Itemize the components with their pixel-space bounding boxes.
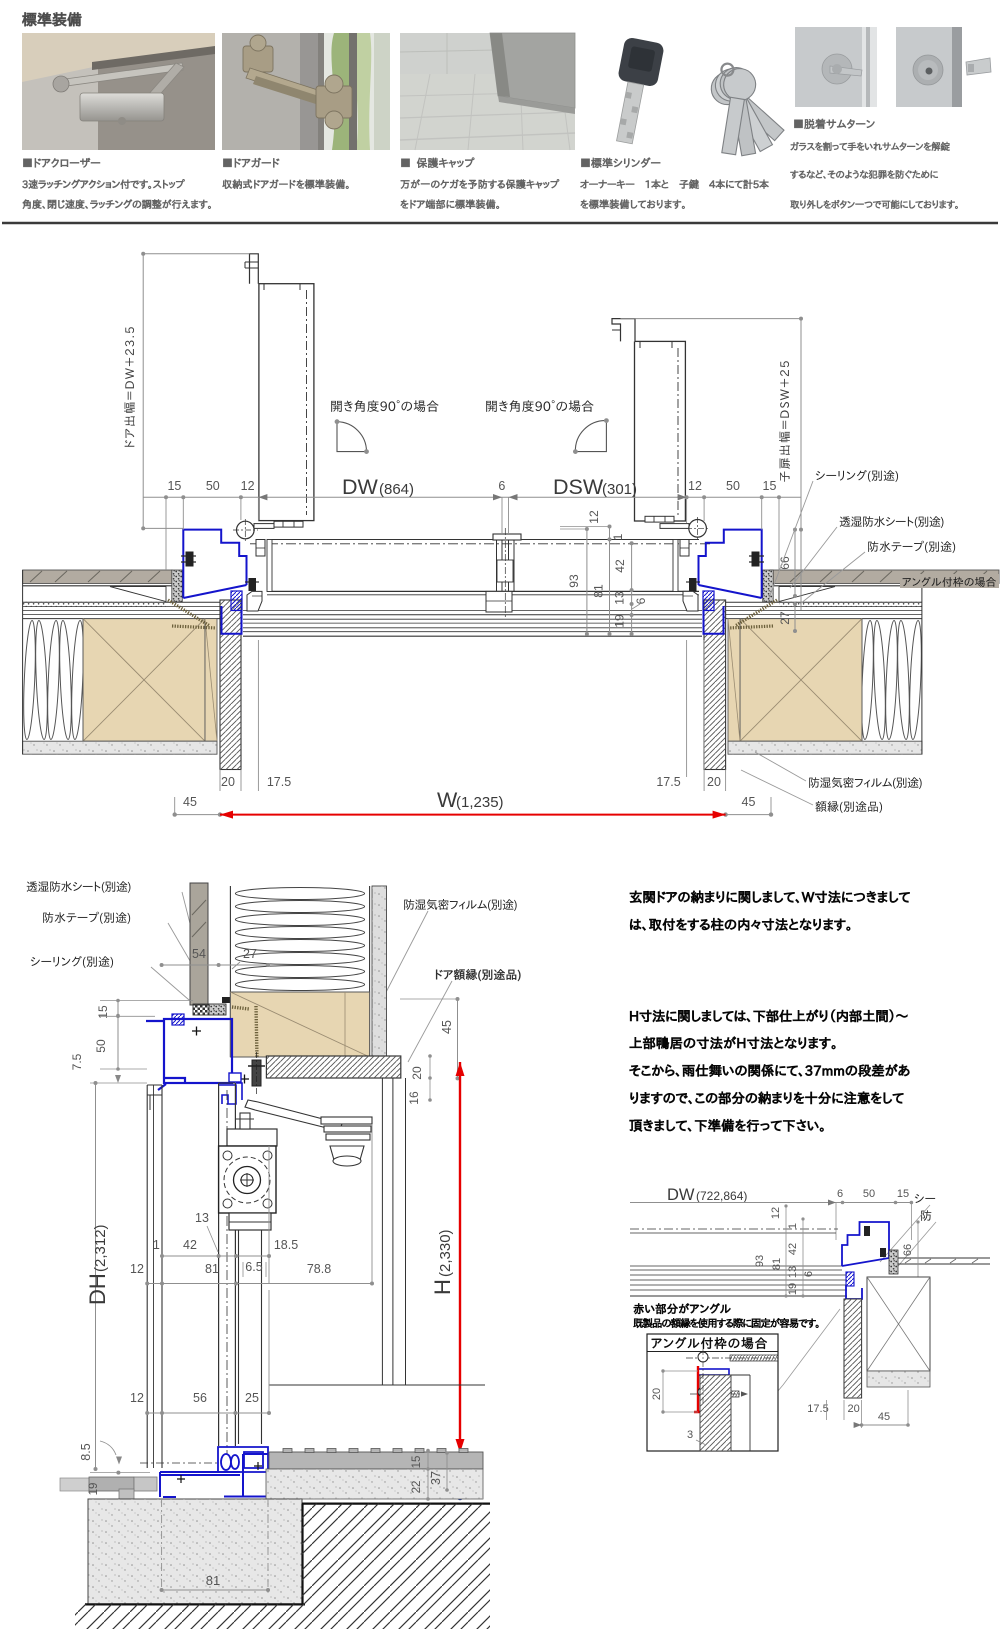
svg-text:19: 19 (787, 1283, 799, 1295)
svg-text:45: 45 (742, 795, 756, 809)
svg-text:(301): (301) (602, 481, 637, 498)
svg-text:20: 20 (651, 1388, 663, 1400)
svg-text:DW: DW (342, 475, 379, 499)
svg-text:(1,235): (1,235) (456, 794, 504, 811)
svg-text:15: 15 (897, 1188, 909, 1200)
svg-text:78.8: 78.8 (307, 1262, 331, 1276)
svg-text:50: 50 (863, 1188, 875, 1200)
svg-text:20: 20 (847, 1403, 859, 1415)
svg-text:20: 20 (410, 1066, 424, 1080)
svg-text:50: 50 (206, 479, 220, 493)
svg-text:(2,330): (2,330) (437, 1229, 454, 1277)
svg-text:45: 45 (440, 1020, 454, 1034)
svg-text:27: 27 (778, 611, 792, 625)
svg-text:66: 66 (902, 1244, 914, 1256)
svg-text:H: H (430, 1279, 455, 1295)
svg-text:1: 1 (153, 1238, 160, 1252)
svg-text:7.5: 7.5 (70, 1053, 84, 1070)
svg-text:16: 16 (407, 1091, 421, 1105)
svg-text:(2,312): (2,312) (92, 1224, 109, 1272)
svg-text:81: 81 (206, 1573, 220, 1588)
svg-text:50: 50 (726, 479, 740, 493)
svg-text:25: 25 (245, 1391, 259, 1405)
svg-text:17.5: 17.5 (656, 775, 680, 789)
svg-text:42: 42 (183, 1238, 197, 1252)
svg-text:DSW: DSW (553, 475, 604, 499)
svg-text:15: 15 (763, 479, 777, 493)
svg-text:6: 6 (803, 1271, 815, 1277)
svg-text:27: 27 (243, 947, 257, 961)
svg-text:12: 12 (587, 510, 601, 524)
svg-text:93: 93 (567, 574, 581, 588)
svg-text:50: 50 (94, 1039, 108, 1053)
svg-text:13: 13 (195, 1211, 209, 1225)
svg-text:6: 6 (634, 597, 648, 604)
svg-text:W: W (437, 788, 458, 812)
svg-text:22: 22 (411, 1481, 423, 1494)
svg-text:54: 54 (192, 947, 206, 961)
svg-text:1: 1 (787, 1223, 799, 1229)
svg-text:13: 13 (787, 1266, 799, 1278)
svg-text:6: 6 (837, 1188, 843, 1200)
svg-text:3: 3 (687, 1429, 693, 1441)
svg-text:(864): (864) (379, 481, 414, 498)
svg-text:13: 13 (613, 591, 627, 605)
svg-text:12: 12 (130, 1391, 144, 1405)
svg-text:17.5: 17.5 (267, 775, 291, 789)
svg-text:1: 1 (611, 533, 625, 540)
svg-text:20: 20 (707, 775, 721, 789)
svg-text:6: 6 (498, 479, 505, 493)
svg-text:DW: DW (667, 1186, 695, 1204)
svg-text:12: 12 (770, 1207, 782, 1219)
svg-text:6.5: 6.5 (245, 1260, 262, 1274)
svg-text:19: 19 (88, 1483, 100, 1496)
svg-text:19: 19 (613, 614, 627, 628)
svg-text:8.5: 8.5 (79, 1443, 93, 1460)
svg-text:15: 15 (167, 479, 181, 493)
svg-text:81: 81 (205, 1262, 219, 1276)
svg-text:93: 93 (754, 1255, 766, 1267)
svg-text:DH: DH (85, 1273, 110, 1305)
svg-text:15: 15 (411, 1456, 423, 1469)
svg-text:56: 56 (193, 1391, 207, 1405)
svg-text:12: 12 (241, 479, 255, 493)
svg-text:12: 12 (130, 1262, 144, 1276)
svg-text:42: 42 (613, 559, 627, 573)
svg-text:(722,864): (722,864) (696, 1189, 747, 1203)
svg-text:81: 81 (592, 584, 606, 598)
svg-text:12: 12 (688, 479, 702, 493)
svg-text:45: 45 (878, 1411, 890, 1423)
svg-text:20: 20 (221, 775, 235, 789)
svg-text:81: 81 (771, 1258, 783, 1270)
svg-text:37: 37 (429, 1471, 443, 1485)
svg-text:17.5: 17.5 (807, 1403, 828, 1415)
svg-text:42: 42 (787, 1243, 799, 1255)
svg-text:18.5: 18.5 (274, 1238, 298, 1252)
svg-text:45: 45 (183, 795, 197, 809)
